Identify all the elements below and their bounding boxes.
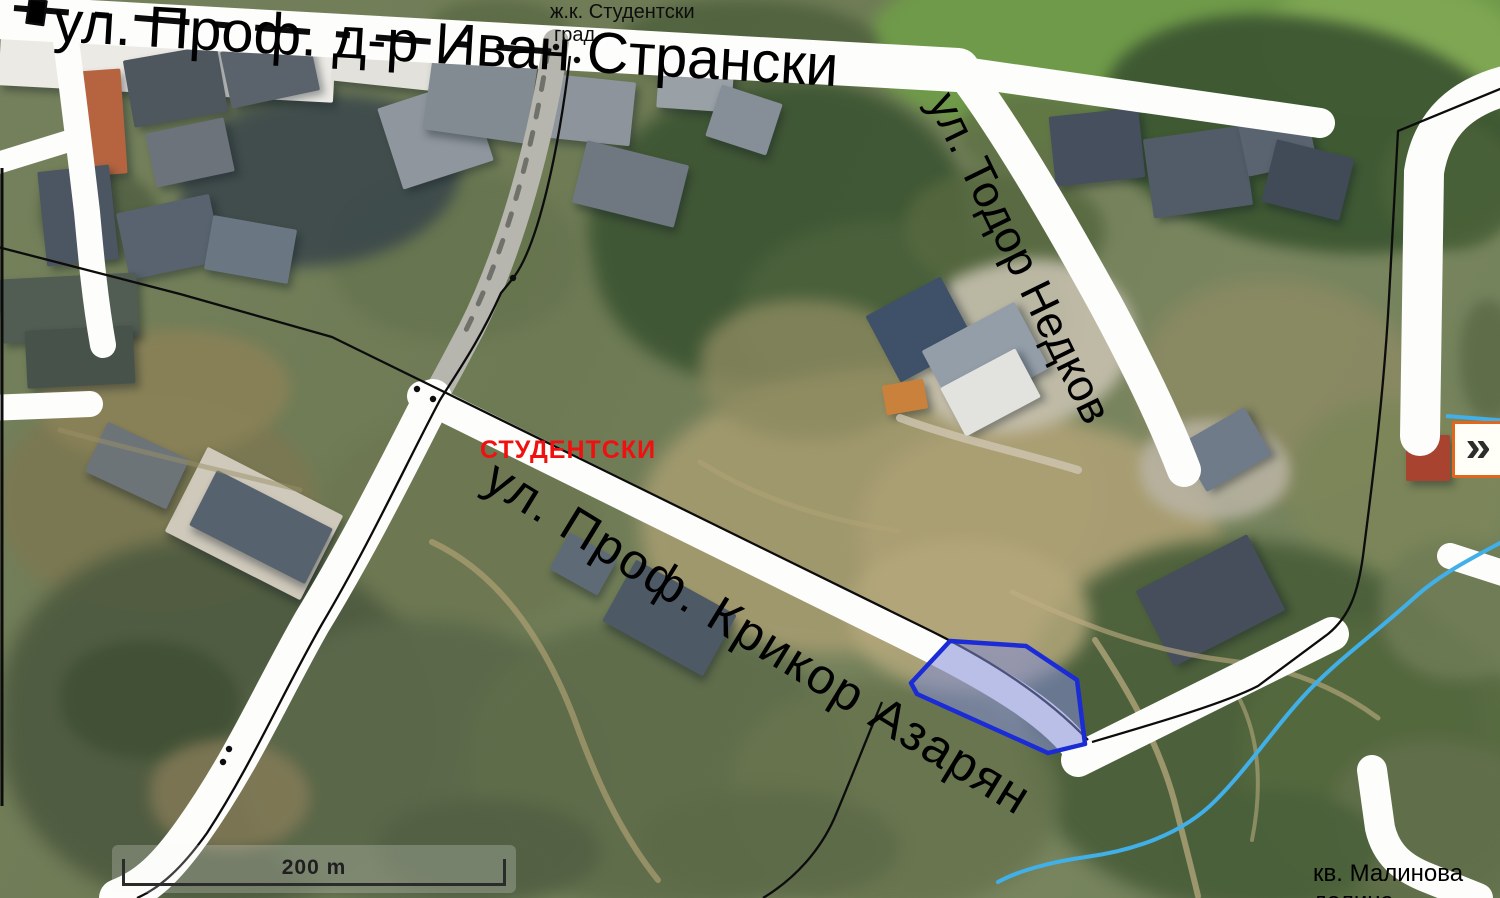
road-todor-nedkov: [966, 76, 1184, 470]
expand-panel-button[interactable]: »: [1452, 421, 1500, 478]
aerial-map-canvas[interactable]: ж.к. Студентски град ул. Проф. д-р Иван …: [0, 0, 1500, 898]
road-left-branch: [0, 140, 72, 166]
road-bottom-right: [1372, 770, 1478, 898]
road-descending-left: [118, 398, 433, 898]
highlighted-parcel[interactable]: [911, 641, 1085, 753]
road-left-vertical: [64, 26, 103, 345]
dirt-paths: [60, 418, 1378, 896]
road-ivan-stranski: [0, 16, 958, 70]
cadastral-boundary: [0, 0, 1500, 898]
road-krikor-branch: [1078, 634, 1332, 760]
roads: [0, 16, 1500, 898]
boundary-corner-mark: [26, 0, 46, 25]
road-left-horizontal: [0, 404, 90, 408]
road-right-edge: [1420, 84, 1500, 436]
map-vector-overlay: [0, 0, 1500, 898]
double-chevron-right-icon: »: [1465, 425, 1491, 469]
